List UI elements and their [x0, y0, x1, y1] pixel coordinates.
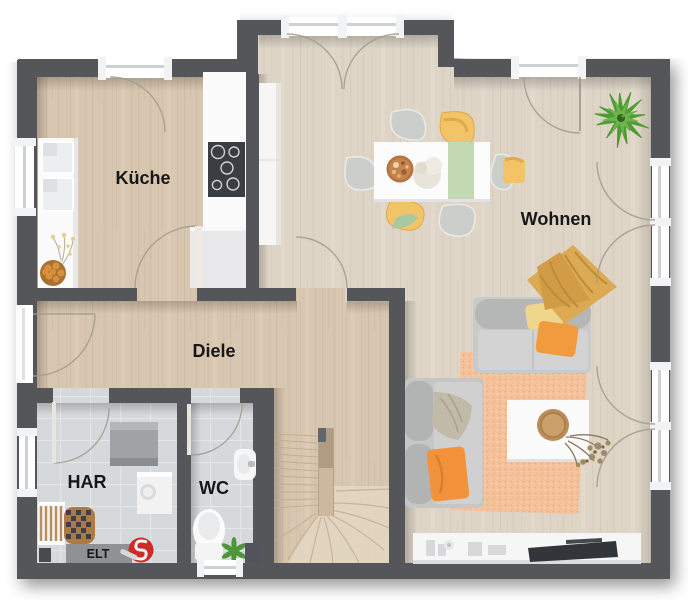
svg-text:Diele: Diele: [192, 341, 235, 361]
svg-text:WC: WC: [199, 478, 229, 498]
svg-text:Küche: Küche: [115, 168, 170, 188]
svg-text:Wohnen: Wohnen: [521, 209, 592, 229]
svg-text:HAR: HAR: [68, 472, 107, 492]
svg-text:ELT: ELT: [87, 547, 110, 561]
